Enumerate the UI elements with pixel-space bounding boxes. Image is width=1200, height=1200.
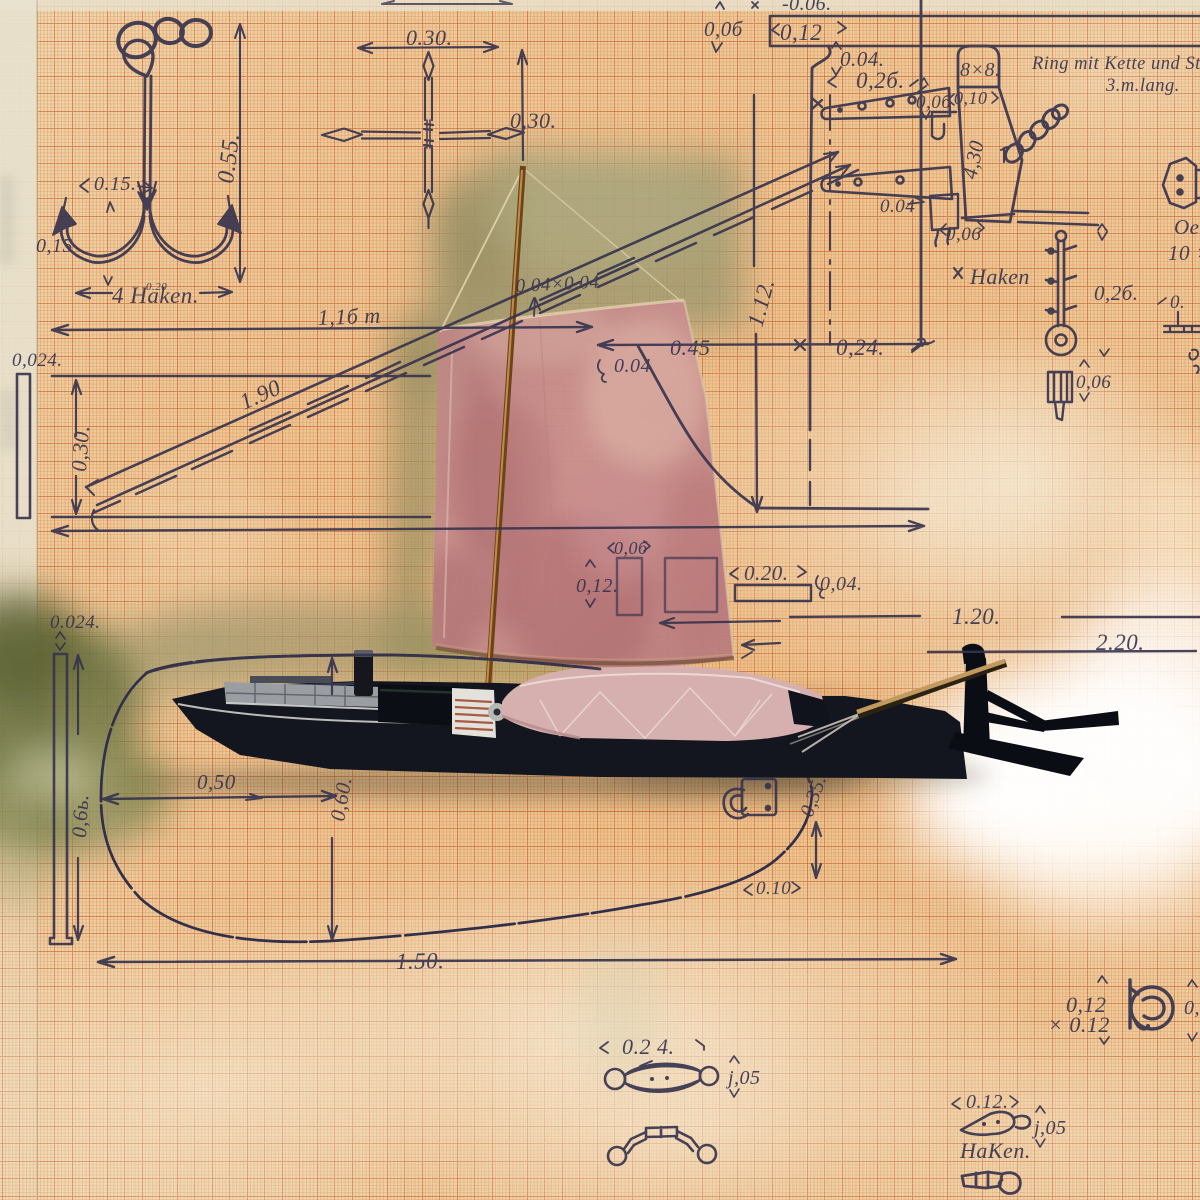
svg-text:0.45: 0.45: [670, 335, 711, 360]
svg-text:0.30.: 0.30.: [406, 25, 453, 50]
svg-text:0.024.: 0.024.: [50, 612, 101, 633]
svg-text:0.10: 0.10: [756, 878, 791, 899]
svg-text:0.20: 0.20: [146, 281, 167, 293]
svg-text:0,15: 0,15: [36, 235, 73, 257]
svg-text:ј,05: ј,05: [725, 1067, 761, 1089]
svg-text:0.12.: 0.12.: [966, 1091, 1009, 1113]
svg-text:1.50.: 1.50.: [396, 948, 445, 974]
svg-text:0.04: 0.04: [880, 196, 915, 217]
svg-text:ј,05: ј,05: [1031, 1117, 1067, 1139]
svg-text:0,: 0,: [1184, 997, 1200, 1019]
svg-text:0,04.: 0,04.: [820, 573, 863, 595]
svg-text:0,06: 0,06: [1076, 372, 1111, 393]
svg-text:0.: 0.: [1170, 292, 1185, 313]
svg-text:Oe: Oe: [1174, 215, 1200, 239]
svg-text:0,06: 0,06: [946, 224, 981, 245]
svg-text:1,1б m: 1,1б m: [317, 303, 381, 330]
svg-text:× 0.12: × 0.12: [1048, 1012, 1110, 1037]
svg-text:8×8.: 8×8.: [960, 59, 1001, 81]
svg-text:0,2б.: 0,2б.: [1094, 281, 1139, 305]
svg-text:0.20.: 0.20.: [744, 561, 789, 585]
svg-text:0.15.: 0.15.: [94, 173, 137, 195]
svg-text:0,024.: 0,024.: [12, 350, 63, 371]
svg-text:HаKen.: HаKen.: [959, 1138, 1031, 1163]
svg-text:Hаken: Hаken: [969, 264, 1030, 289]
svg-text:0,0б: 0,0б: [614, 538, 648, 558]
svg-text:0,6ь.: 0,6ь.: [67, 794, 93, 839]
svg-text:0,30.: 0,30.: [510, 108, 557, 133]
svg-text:0,12: 0,12: [780, 20, 822, 45]
svg-text:10 ×: 10 ×: [1168, 241, 1200, 265]
svg-text:0,50: 0,50: [197, 770, 236, 794]
svg-text:1.20.: 1.20.: [952, 604, 1001, 629]
svg-text:Ring mit Kette und Stec: Ring mit Kette und Stec: [1031, 54, 1200, 74]
svg-text:0.04×0.04: 0.04×0.04: [515, 272, 600, 297]
svg-text:0,24.: 0,24.: [836, 335, 885, 360]
svg-text:0.2 4.: 0.2 4.: [622, 1034, 675, 1059]
svg-text:0,12.: 0,12.: [576, 575, 619, 597]
svg-text:3.m.lang.: 3.m.lang.: [1105, 76, 1180, 96]
svg-text:0,0б: 0,0б: [704, 17, 744, 41]
svg-text:0,30.: 0,30.: [66, 424, 94, 472]
svg-text:-0.06.: -0.06.: [782, 0, 832, 15]
svg-text:0,0б: 0,0б: [916, 92, 952, 113]
svg-text:0,2б.: 0,2б.: [856, 68, 905, 93]
